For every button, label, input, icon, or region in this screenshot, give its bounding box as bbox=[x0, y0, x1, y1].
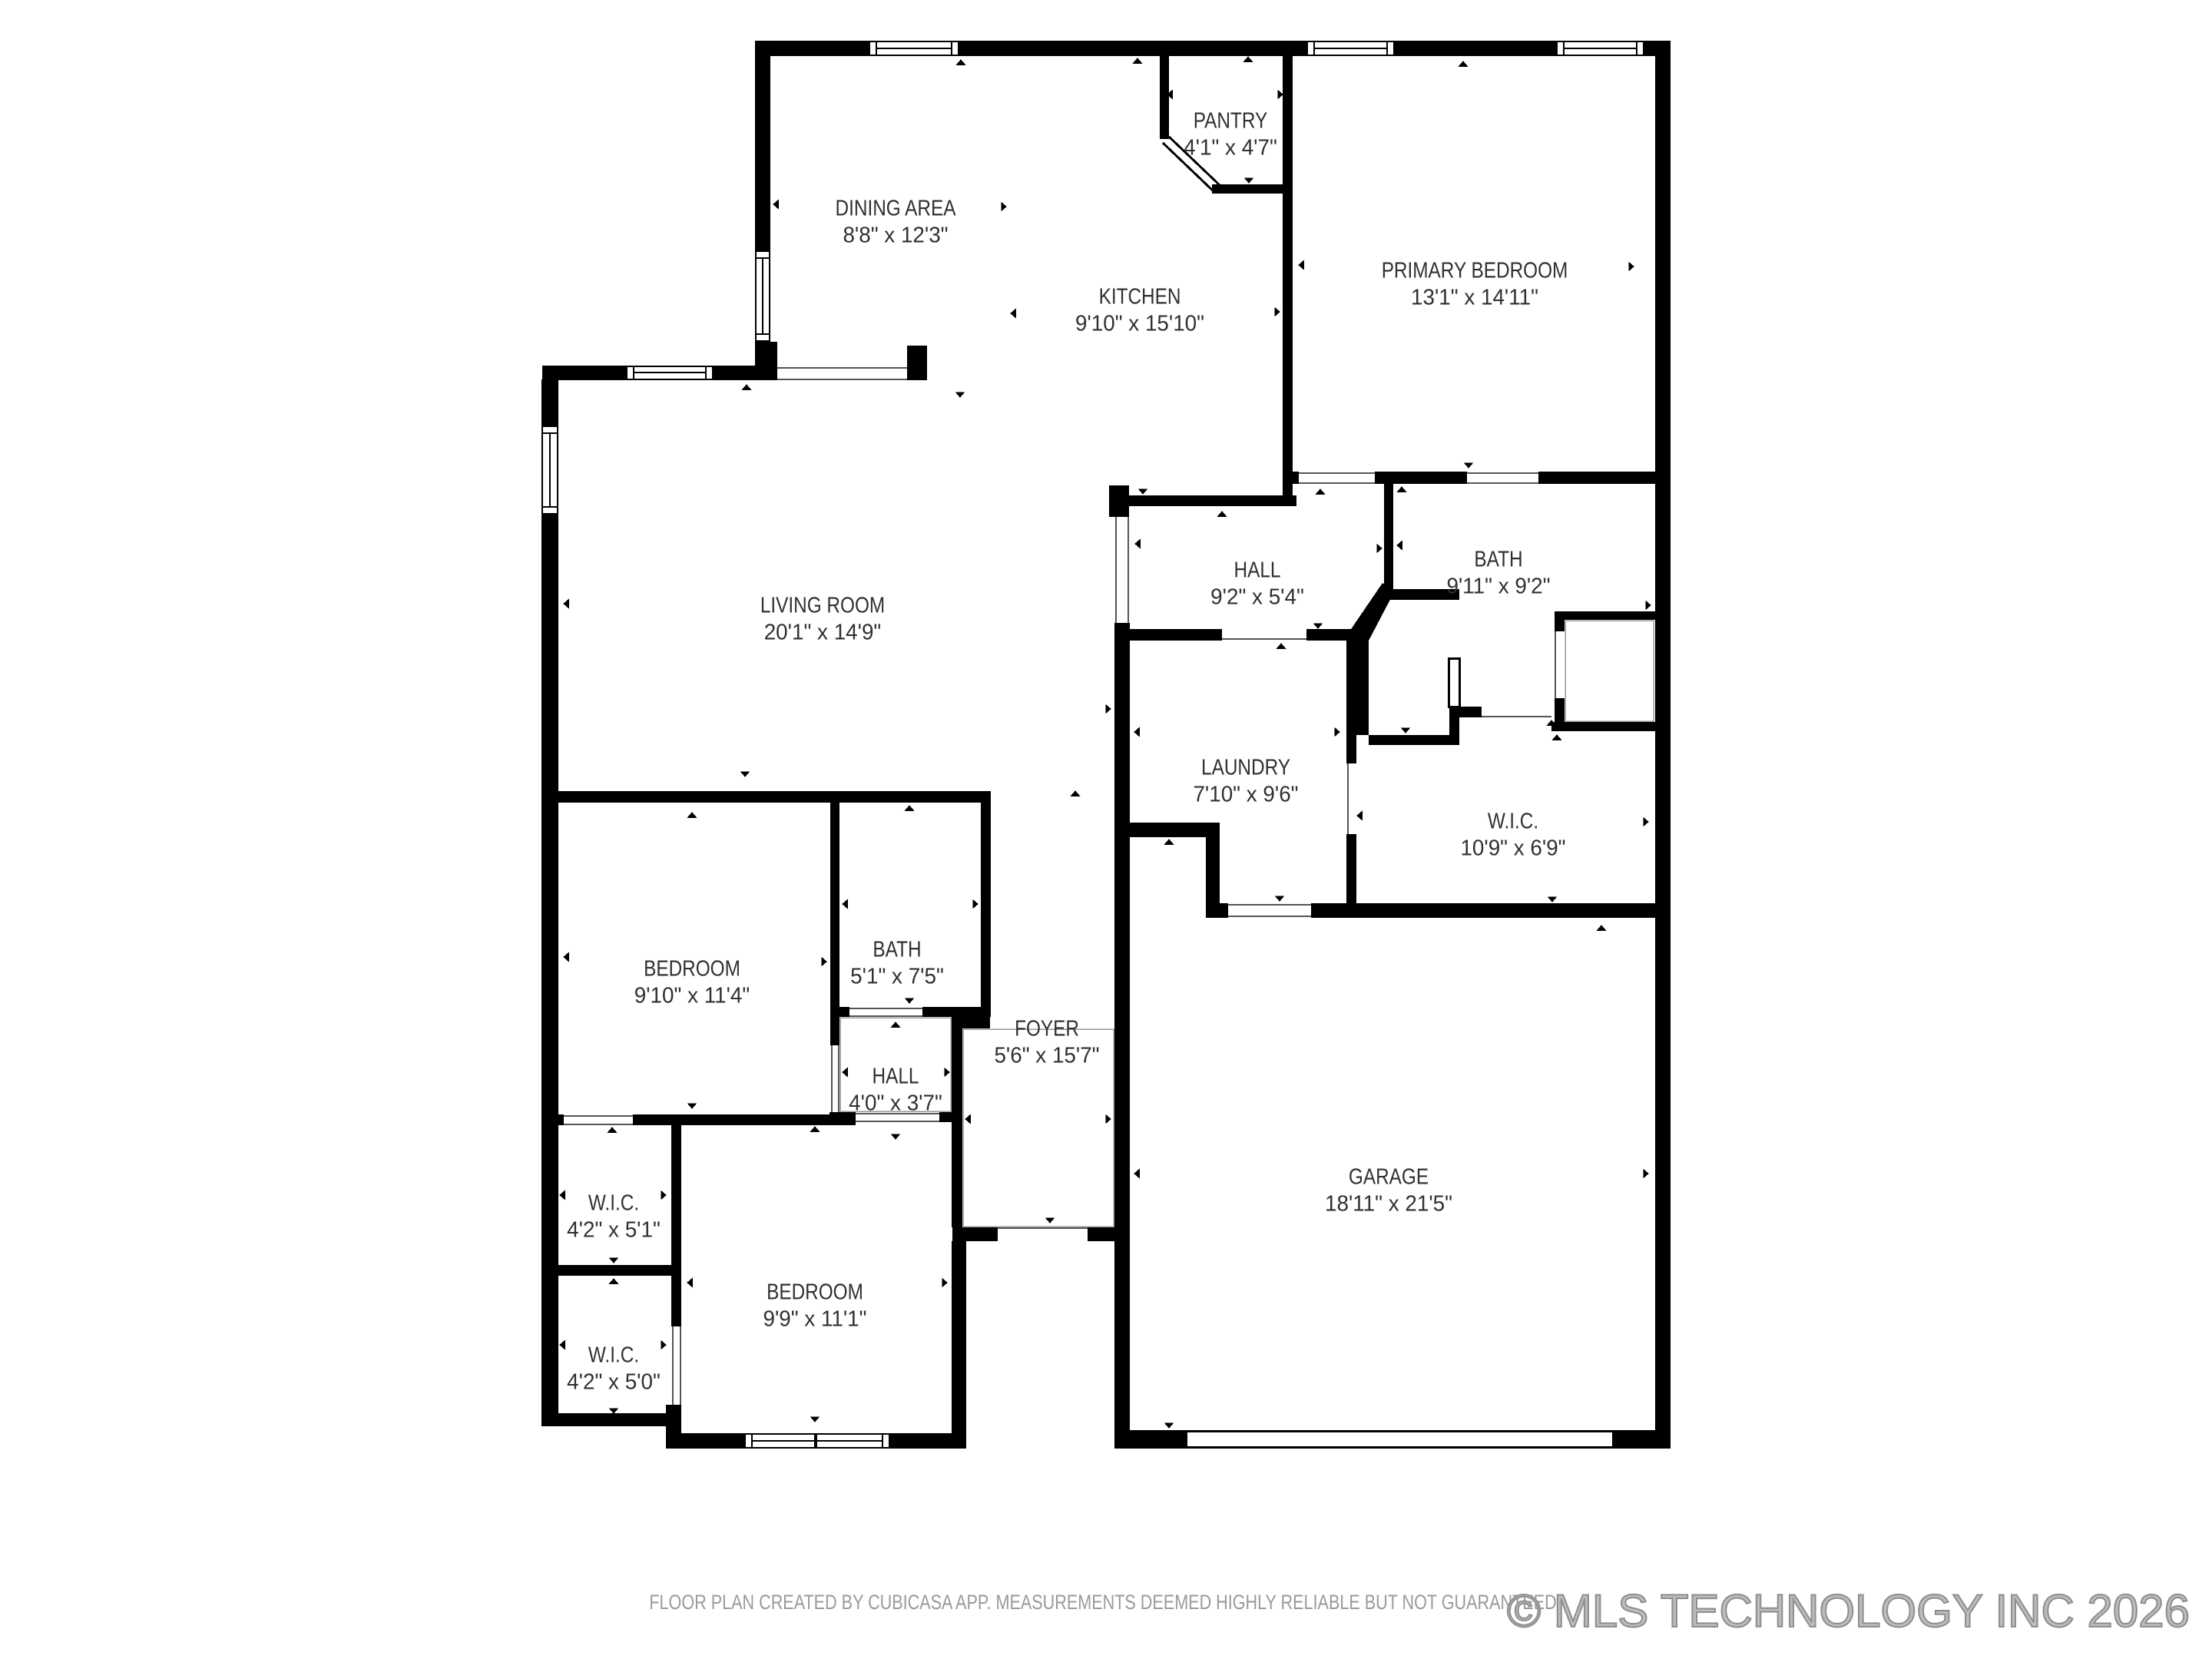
svg-text:W.I.C.: W.I.C. bbox=[588, 1343, 639, 1367]
svg-text:9'10" x 11'4": 9'10" x 11'4" bbox=[634, 983, 750, 1008]
svg-text:GARAGE: GARAGE bbox=[1349, 1164, 1429, 1189]
svg-text:4'2" x 5'1": 4'2" x 5'1" bbox=[567, 1217, 661, 1243]
svg-text:DINING AREA: DINING AREA bbox=[836, 196, 956, 220]
svg-text:BEDROOM: BEDROOM bbox=[644, 956, 740, 981]
svg-text:LIVING ROOM: LIVING ROOM bbox=[760, 593, 885, 618]
svg-text:BATH: BATH bbox=[1474, 547, 1522, 571]
svg-text:9'2" x 5'4": 9'2" x 5'4" bbox=[1210, 584, 1304, 610]
svg-text:FLOOR PLAN CREATED BY CUBICASA: FLOOR PLAN CREATED BY CUBICASA APP. MEAS… bbox=[649, 1591, 1556, 1614]
svg-text:4'2" x 5'0": 4'2" x 5'0" bbox=[567, 1369, 661, 1395]
svg-text:18'11" x 21'5": 18'11" x 21'5" bbox=[1325, 1191, 1452, 1217]
svg-text:9'10" x 15'10": 9'10" x 15'10" bbox=[1075, 311, 1204, 336]
svg-text:LAUNDRY: LAUNDRY bbox=[1201, 755, 1290, 780]
svg-text:KITCHEN: KITCHEN bbox=[1099, 284, 1181, 309]
svg-text:5'6" x 15'7": 5'6" x 15'7" bbox=[994, 1043, 1099, 1068]
svg-text:BATH: BATH bbox=[873, 937, 921, 962]
svg-text:W.I.C.: W.I.C. bbox=[1488, 809, 1538, 833]
svg-text:7'10" x 9'6": 7'10" x 9'6" bbox=[1193, 782, 1298, 807]
svg-text:9'11" x 9'2": 9'11" x 9'2" bbox=[1446, 574, 1550, 599]
svg-text:13'1" x 14'11": 13'1" x 14'11" bbox=[1411, 285, 1538, 310]
svg-text:W.I.C.: W.I.C. bbox=[588, 1190, 639, 1215]
svg-text:BEDROOM: BEDROOM bbox=[767, 1280, 863, 1304]
svg-text:4'1" x 4'7": 4'1" x 4'7" bbox=[1184, 135, 1277, 161]
svg-text:20'1" x 14'9": 20'1" x 14'9" bbox=[764, 620, 882, 645]
svg-text:5'1" x 7'5": 5'1" x 7'5" bbox=[850, 964, 944, 989]
svg-text:8'8" x 12'3": 8'8" x 12'3" bbox=[843, 223, 948, 248]
svg-text:PANTRY: PANTRY bbox=[1194, 108, 1268, 133]
svg-text:HALL: HALL bbox=[1234, 558, 1281, 582]
svg-text:FOYER: FOYER bbox=[1015, 1016, 1079, 1041]
svg-text:9'9" x 11'1": 9'9" x 11'1" bbox=[763, 1306, 866, 1332]
svg-text:HALL: HALL bbox=[873, 1064, 919, 1088]
svg-text:© MLS TECHNOLOGY INC 2026: © MLS TECHNOLOGY INC 2026 bbox=[1507, 1585, 2190, 1637]
svg-text:PRIMARY BEDROOM: PRIMARY BEDROOM bbox=[1382, 258, 1568, 283]
svg-text:10'9" x 6'9": 10'9" x 6'9" bbox=[1460, 836, 1565, 861]
svg-text:4'0" x 3'7": 4'0" x 3'7" bbox=[849, 1091, 942, 1116]
